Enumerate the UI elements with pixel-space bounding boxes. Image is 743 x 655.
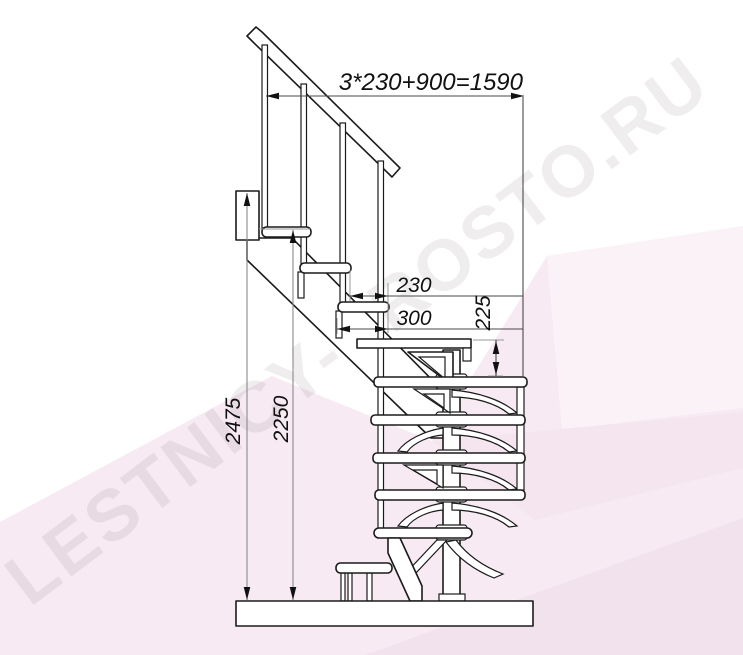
spiral-tread-8 xyxy=(375,490,525,500)
landing-right-tab xyxy=(463,348,471,361)
step-support-right xyxy=(367,573,372,601)
spiral-tread-6 xyxy=(371,415,525,425)
staircase-drawing: LESTNICY-PROSTO.RU xyxy=(0,0,743,655)
column-base-plate xyxy=(439,594,465,601)
baluster-3 xyxy=(340,123,346,303)
step-tread xyxy=(336,563,392,573)
step-leg-1 xyxy=(341,573,345,601)
tread-module-post-2 xyxy=(298,272,304,298)
handrail xyxy=(247,27,400,177)
dimension-label-total-height: 2475 xyxy=(222,397,245,445)
floor-slab xyxy=(236,601,533,626)
spiral-tread-7 xyxy=(373,453,525,463)
bg-facet-light xyxy=(547,226,743,430)
dimension-label-total-run: 3*230+900=1590 xyxy=(339,69,524,96)
landing-board xyxy=(357,339,471,348)
dimension-label-step-run: 230 xyxy=(395,274,431,297)
drawing-stage: LESTNICY-PROSTO.RU xyxy=(0,0,743,655)
step-leg-2 xyxy=(348,573,352,601)
spiral-tread-5 xyxy=(374,377,527,387)
dimension-label-tread-depth: 300 xyxy=(396,307,431,330)
spiral-right-post xyxy=(517,387,524,490)
tread-3 xyxy=(338,302,389,312)
tread-2 xyxy=(300,263,351,273)
spiral-tread-9 xyxy=(374,528,472,538)
baluster-1 xyxy=(262,45,268,228)
dimension-label-riser-height: 225 xyxy=(472,295,495,331)
dimension-label-upper-height: 2250 xyxy=(270,395,293,443)
